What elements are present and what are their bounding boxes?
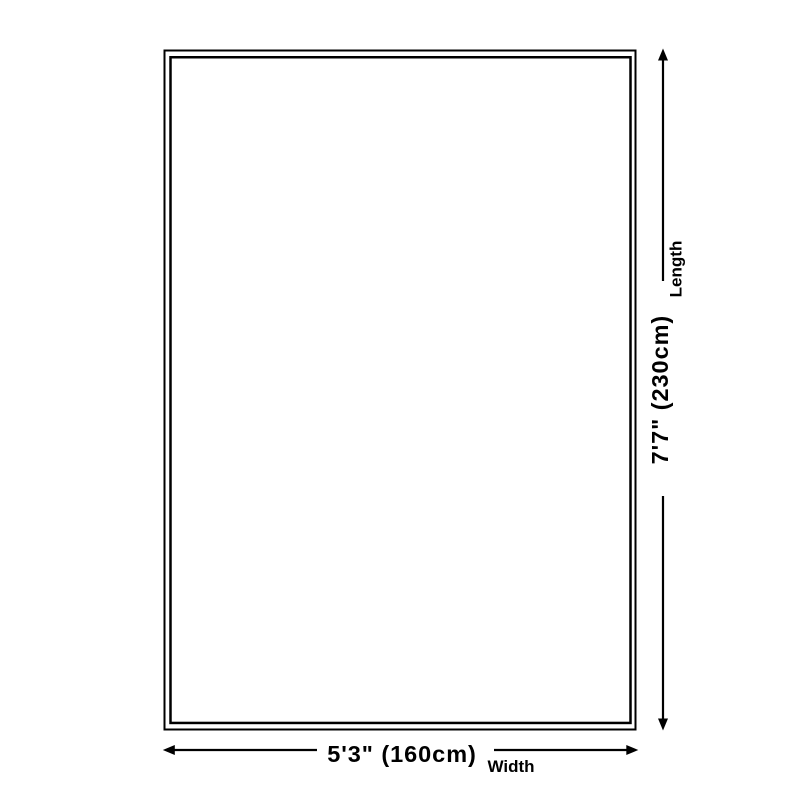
svg-text:Length: Length [667,241,686,298]
svg-text:5'3" (160cm): 5'3" (160cm) [327,741,477,767]
svg-text:Width: Width [487,757,534,776]
svg-text:7'7" (230cm): 7'7" (230cm) [647,315,673,465]
